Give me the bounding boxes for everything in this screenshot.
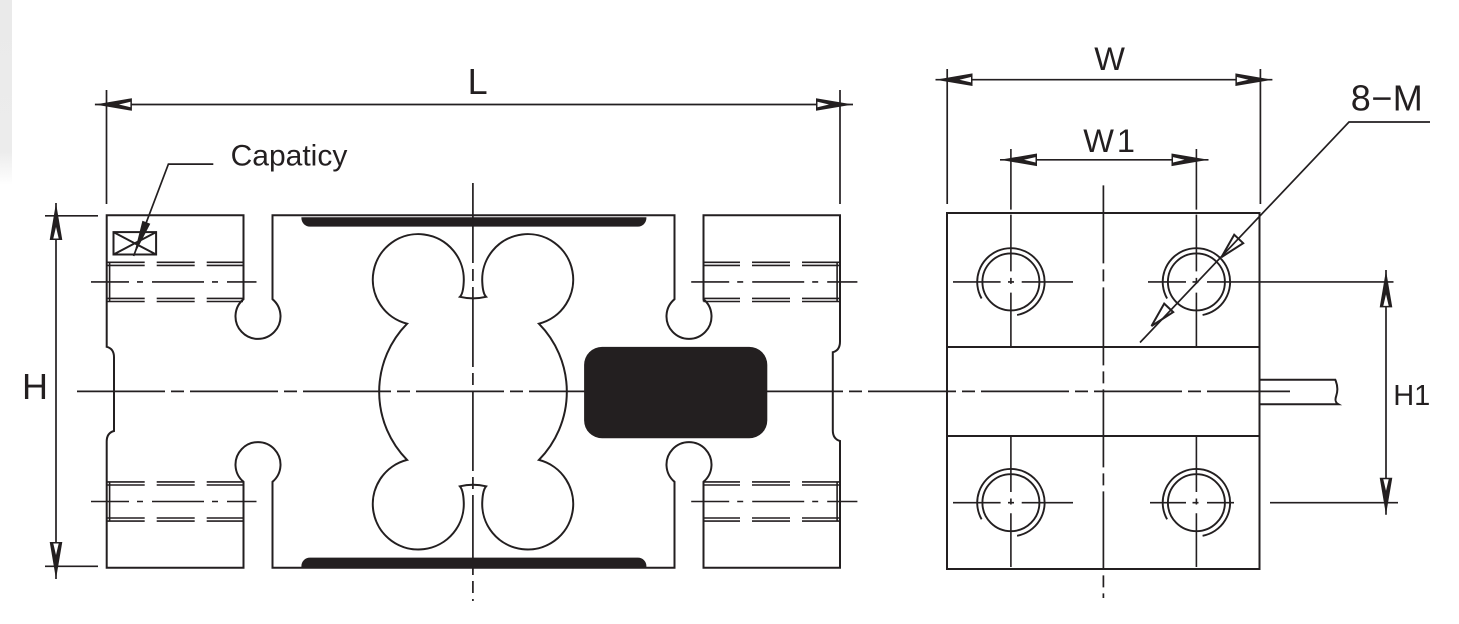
svg-text:H1: H1 — [1393, 380, 1430, 412]
svg-text:W: W — [1094, 41, 1125, 77]
svg-text:H: H — [22, 366, 48, 407]
svg-text:Capaticy: Capaticy — [231, 139, 348, 172]
svg-text:L: L — [468, 61, 488, 102]
svg-text:W1: W1 — [1083, 123, 1138, 159]
svg-text:8−M: 8−M — [1351, 77, 1424, 118]
